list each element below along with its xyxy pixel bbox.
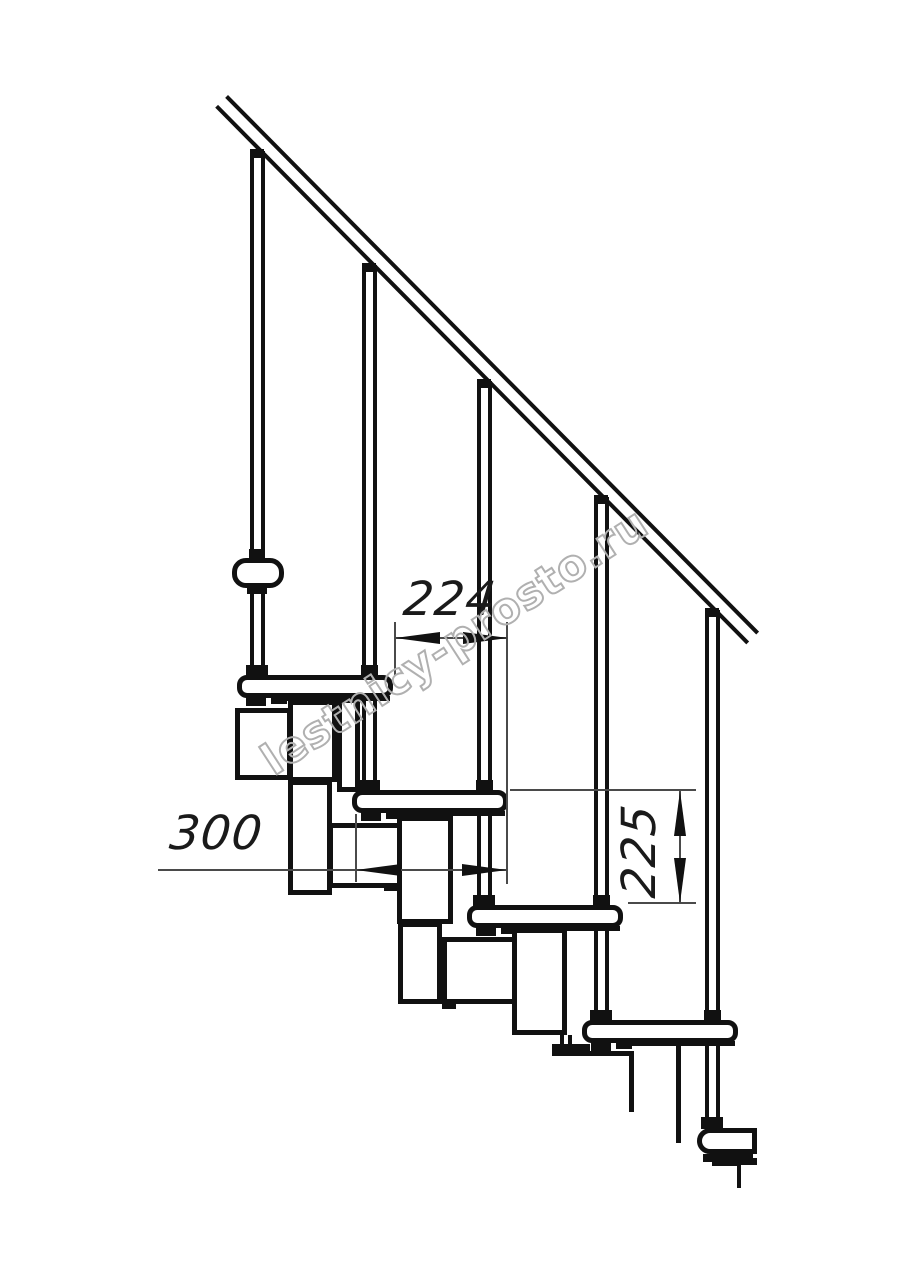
dim-225-arrow-down — [674, 858, 686, 903]
foot-collar-b4 — [590, 1010, 612, 1021]
module-s3 — [442, 937, 518, 1004]
tread-3-clamp-a — [476, 927, 496, 936]
module-nub-2 — [384, 883, 398, 891]
tread-3 — [467, 905, 623, 928]
watermark-text: lestnicy-prosto.ru — [216, 473, 693, 812]
tread-2 — [352, 790, 508, 813]
pass-collar-b5-t4 — [704, 1010, 721, 1020]
pass-collar-b4-t3 — [593, 895, 610, 905]
dim-225-label: 225 — [614, 800, 666, 901]
module-r2 — [398, 922, 442, 1004]
module-s2 — [328, 823, 403, 888]
module-s4-right-line — [629, 1051, 634, 1112]
bracket-collar-bottom — [247, 586, 267, 594]
column-under-tread-3 — [512, 928, 567, 1035]
dim-225-ext-top — [510, 789, 696, 791]
tread-3-under-strip — [515, 926, 620, 931]
foot-collar-b2 — [358, 780, 380, 791]
dim-300-arrow-left — [356, 864, 401, 876]
foot-collar-b3 — [473, 895, 495, 906]
baluster-1 — [250, 151, 265, 675]
module-a2 — [288, 780, 332, 895]
rail-collar-3 — [477, 379, 491, 388]
floor-step-vertical — [737, 1162, 741, 1188]
dim-224-ext-right — [506, 622, 508, 884]
module-s4-top-line — [552, 1051, 634, 1056]
tread-1-clamp-a — [246, 697, 266, 706]
staircase-drawing: 224 300 225 lestnicy-prosto.ru — [0, 0, 914, 1280]
handrail-bracket — [232, 558, 284, 588]
tread-2-under-strip — [400, 811, 505, 816]
rail-collar-2 — [362, 263, 376, 272]
rail-collar-4 — [594, 495, 608, 504]
foot-collar-b1 — [246, 665, 268, 676]
dim-300-label: 300 — [168, 810, 258, 857]
pass-collar-b3-t2 — [476, 780, 493, 790]
tread-4-under-strip — [630, 1041, 735, 1046]
tread-4-clamp-a — [591, 1042, 611, 1051]
rail-collar-1 — [250, 149, 264, 158]
tread-2-clamp-a — [361, 812, 381, 821]
dim-225-arrow-up — [674, 791, 686, 836]
base-pad — [697, 1128, 757, 1154]
rail-collar-5 — [705, 608, 719, 617]
tread-4 — [582, 1020, 738, 1043]
dim-300-line — [158, 869, 508, 871]
dim-300-arrow-right — [462, 864, 507, 876]
column-under-tread-4-line — [676, 1043, 681, 1143]
module-nub-1 — [442, 1000, 456, 1009]
baluster-5 — [705, 610, 720, 1128]
